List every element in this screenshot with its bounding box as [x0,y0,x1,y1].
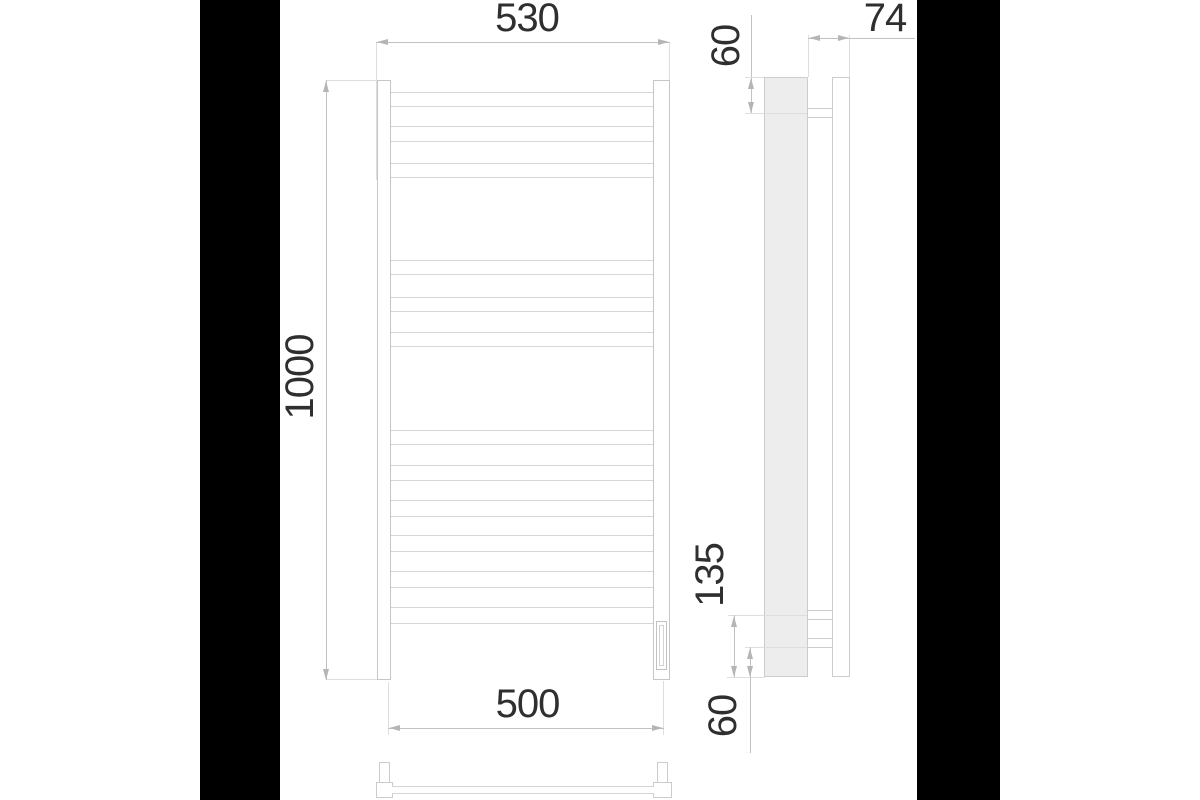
top-bracket-offset-label: 60 [706,25,746,68]
extension-line [669,42,670,80]
extension-line [727,677,765,678]
extension-line [327,679,377,680]
extension-line [327,80,377,81]
arrowhead-down-icon [731,666,737,677]
arrowhead-left-icon [377,39,388,45]
dimension-line [751,15,752,113]
wall-rail [832,77,850,677]
rung [391,163,653,178]
rung [391,332,653,347]
rung [391,430,653,445]
arrowhead-up-icon [748,78,754,89]
wall-bracket-bottom-lower [807,638,833,648]
arrowhead-down-icon [748,102,754,113]
letterbox-bar-left [200,0,280,800]
rung [391,500,653,517]
height-label: 1000 [280,335,320,420]
letterbox-bar-right [917,0,1000,800]
extension-line [745,647,807,648]
arrowhead-up-icon [323,81,329,92]
rung [391,92,653,107]
arrowhead-left-icon [389,725,400,731]
wall-bracket-bottom-upper [807,610,833,620]
bottom-view-left-post [379,762,390,783]
wall-bracket-top [807,108,833,118]
rung [391,535,653,552]
front-left-post [377,80,391,680]
arrowhead-right-icon [652,725,663,731]
dimension-line [750,647,751,753]
rung [391,260,653,275]
extension-line [376,42,377,180]
bottom-width-label: 500 [475,684,580,724]
rung [391,297,653,312]
arrowhead-down-icon [323,669,329,680]
side-profile-bar [764,77,808,677]
front-right-post [653,80,670,680]
bottom-view-right-post [657,762,668,783]
dimension-line [326,80,327,680]
extension-line [849,35,850,77]
heating-element-housing [656,621,667,670]
arrowhead-up-icon [747,648,753,659]
rung [391,607,653,624]
rung [391,465,653,481]
arrowhead-right-icon [658,39,669,45]
heating-element-housing-inner [659,625,664,666]
rung [391,571,653,588]
depth-label: 74 [840,0,930,38]
bottom-bracket-offset-label: 60 [703,695,743,738]
bottom-view-tube [392,786,654,794]
arrowhead-up-icon [731,616,737,627]
arrowhead-left-icon [809,35,820,41]
rung [391,126,653,142]
bottom-view-right-base [653,782,672,798]
extension-line [663,681,664,735]
bottom-bracket-span-label: 135 [690,543,730,607]
dimension-line [376,42,670,43]
bottom-view-left-base [376,782,393,798]
extension-line [728,615,807,616]
technical-drawing-canvas: 530 1000 500 [0,0,1200,800]
top-width-label: 530 [472,0,582,38]
dimension-line [388,728,664,729]
extension-line [745,113,807,114]
arrowhead-down-icon [747,666,753,677]
extension-line [808,35,809,77]
